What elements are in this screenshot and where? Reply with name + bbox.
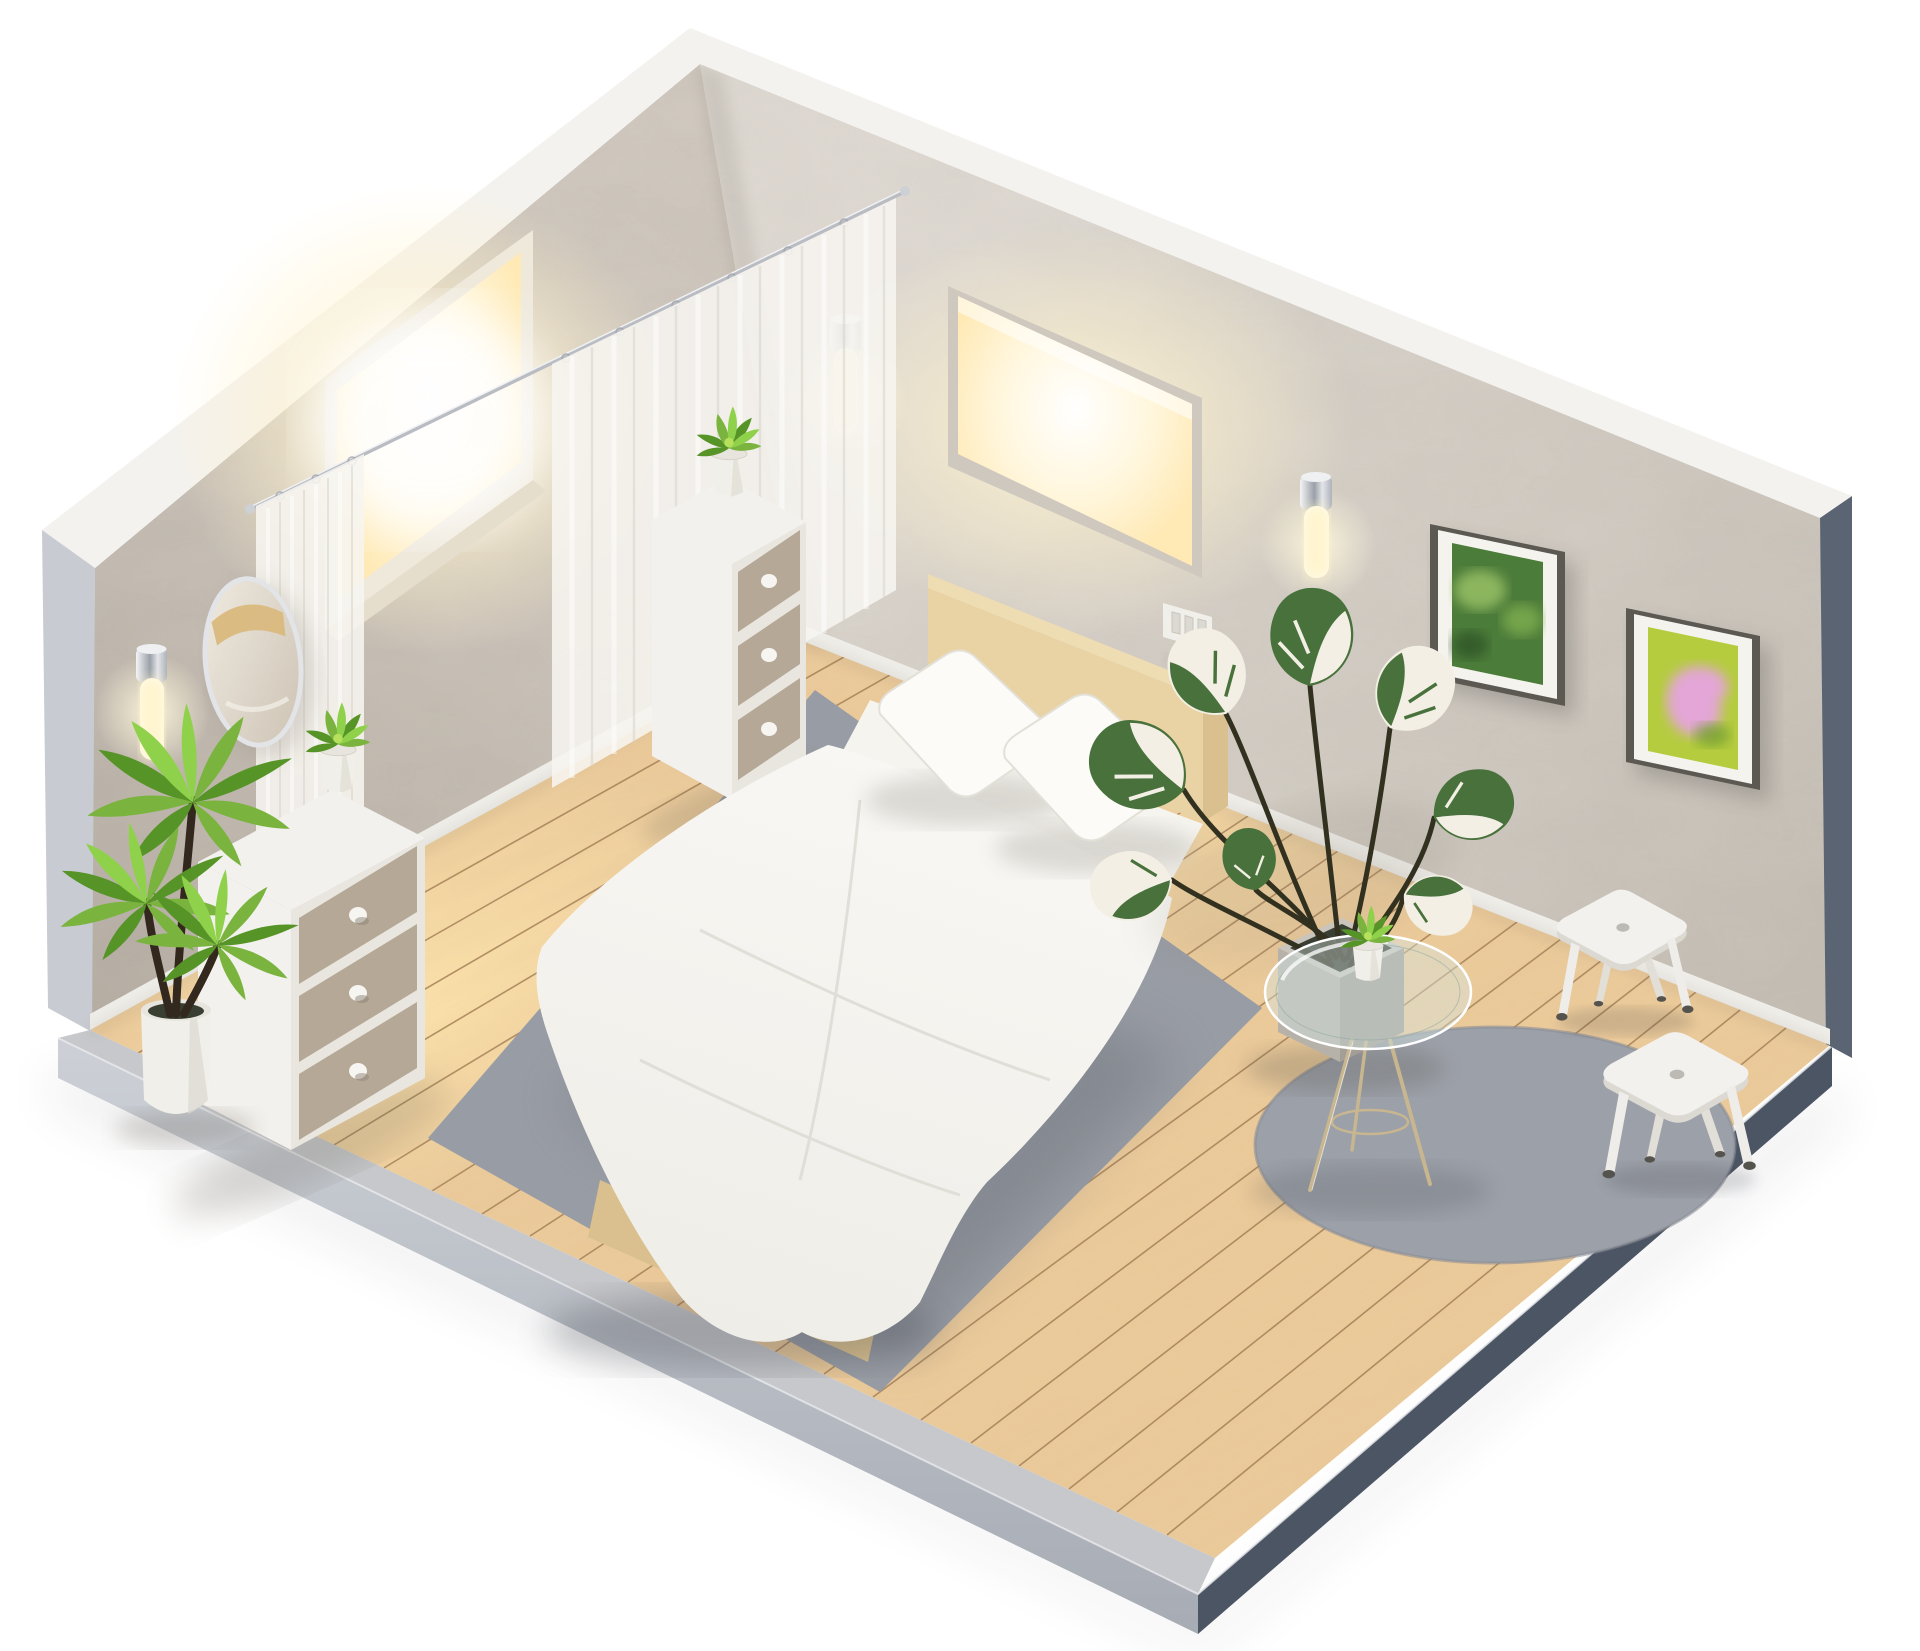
headboard-end: [1203, 698, 1228, 822]
nightstand-side: [652, 520, 732, 800]
left-wall-end-face: [42, 530, 95, 1032]
isometric-room-canvas: [0, 0, 1920, 1651]
frame-flower: [1626, 608, 1770, 802]
bedroom-render: Isometric 3D render of a minimalist bedr…: [0, 0, 1920, 1651]
